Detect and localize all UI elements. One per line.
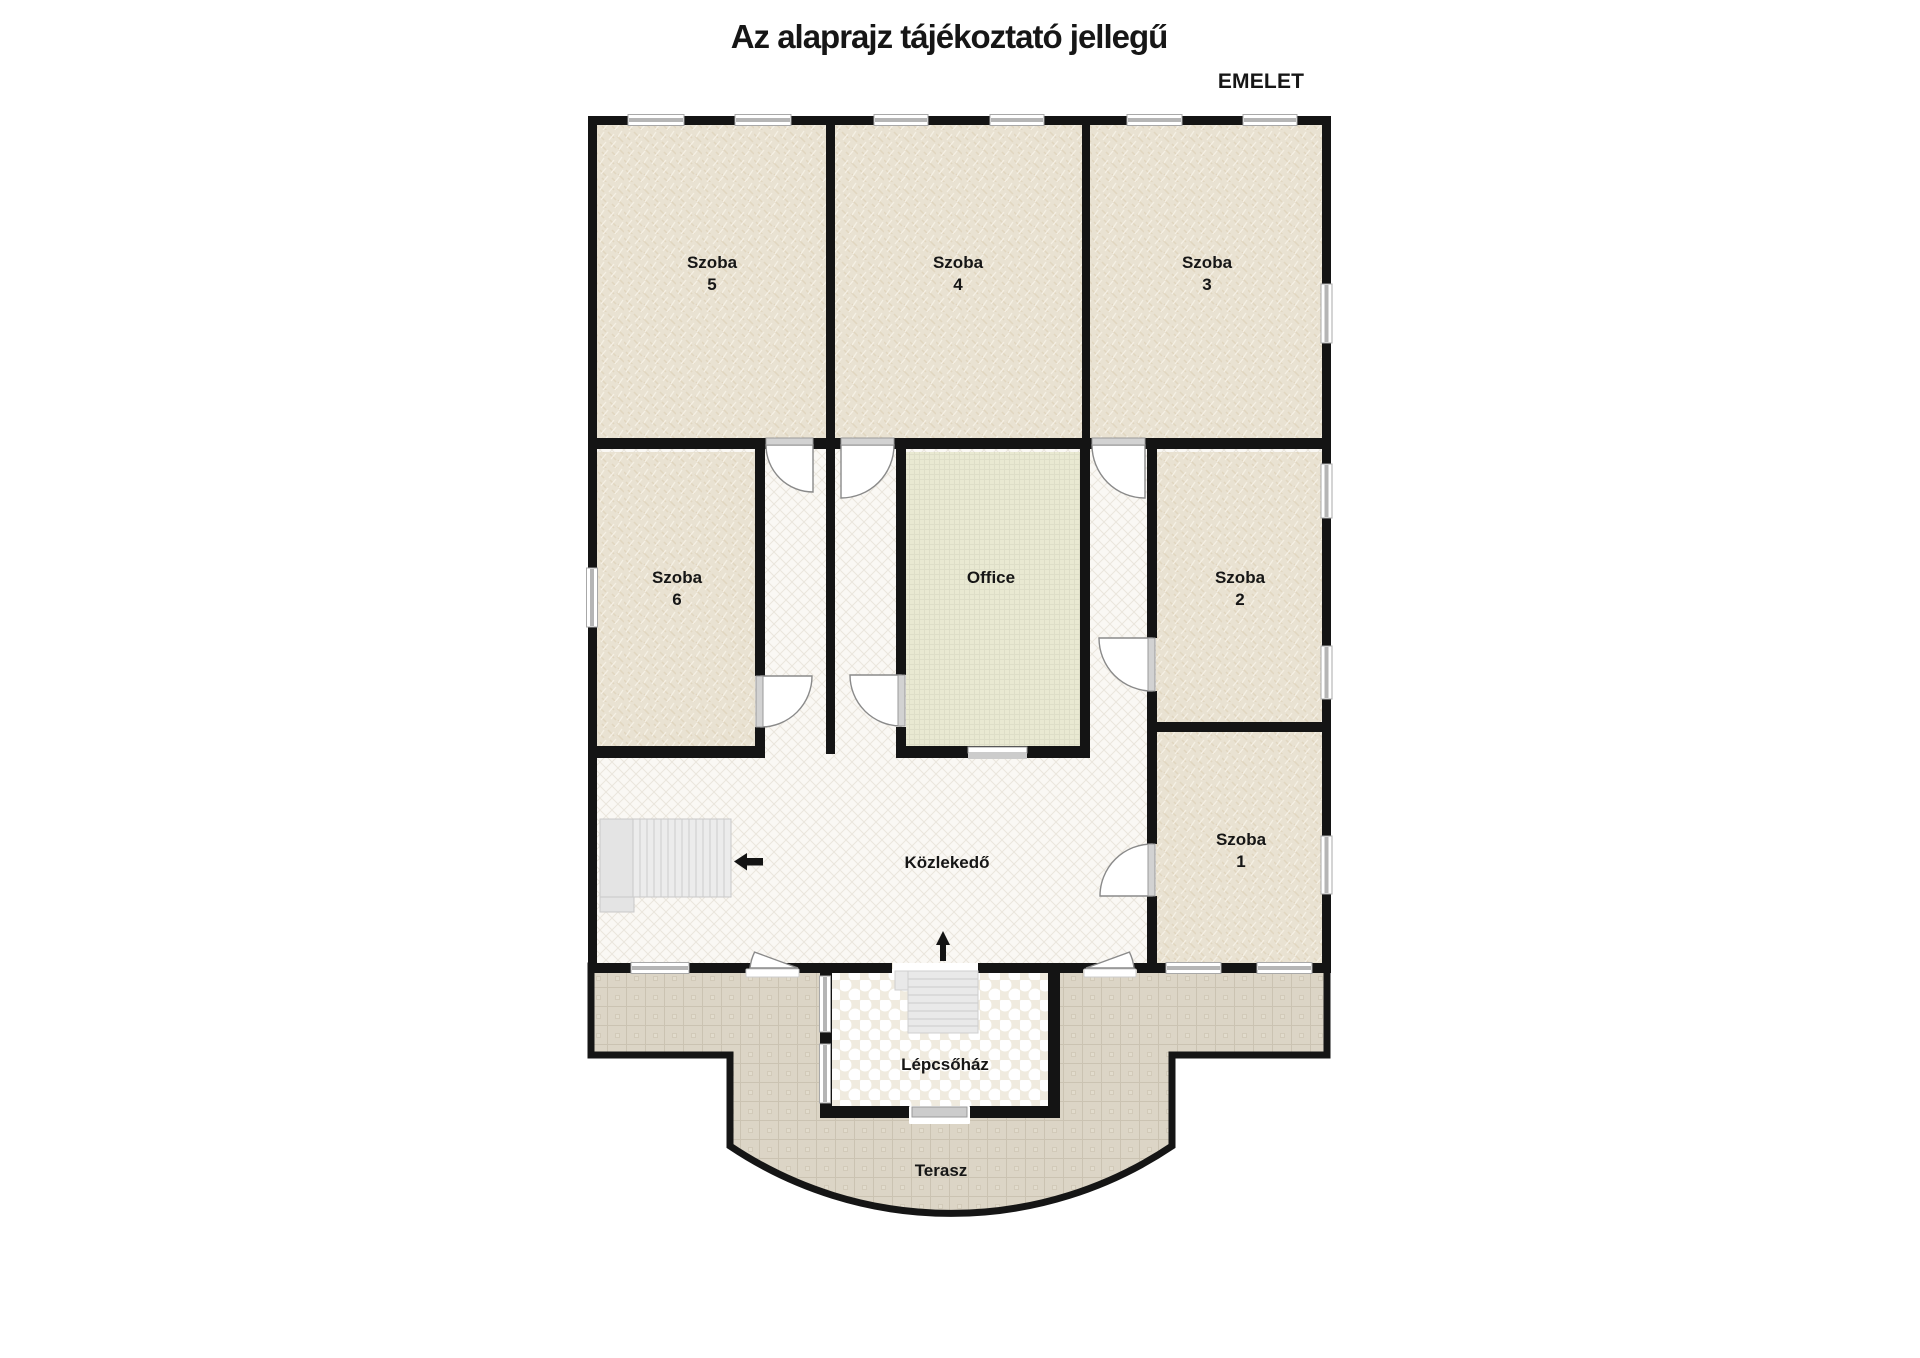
svg-text:Közlekedő: Közlekedő <box>904 853 989 872</box>
svg-text:2: 2 <box>1235 590 1244 609</box>
svg-text:Terasz: Terasz <box>915 1161 968 1180</box>
svg-text:5: 5 <box>707 275 716 294</box>
svg-text:Szoba: Szoba <box>933 253 984 272</box>
svg-text:Office: Office <box>967 568 1015 587</box>
svg-text:Az alaprajz tájékoztató jelleg: Az alaprajz tájékoztató jellegű <box>731 18 1168 55</box>
svg-text:Szoba: Szoba <box>1182 253 1233 272</box>
svg-text:6: 6 <box>672 590 681 609</box>
svg-text:Szoba: Szoba <box>652 568 703 587</box>
svg-text:4: 4 <box>953 275 963 294</box>
svg-text:3: 3 <box>1202 275 1211 294</box>
svg-text:Szoba: Szoba <box>1215 568 1266 587</box>
svg-text:1: 1 <box>1236 852 1245 871</box>
svg-text:EMELET: EMELET <box>1218 70 1304 93</box>
svg-text:Lépcsőház: Lépcsőház <box>901 1055 989 1074</box>
svg-text:Szoba: Szoba <box>1216 830 1267 849</box>
svg-text:Szoba: Szoba <box>687 253 738 272</box>
